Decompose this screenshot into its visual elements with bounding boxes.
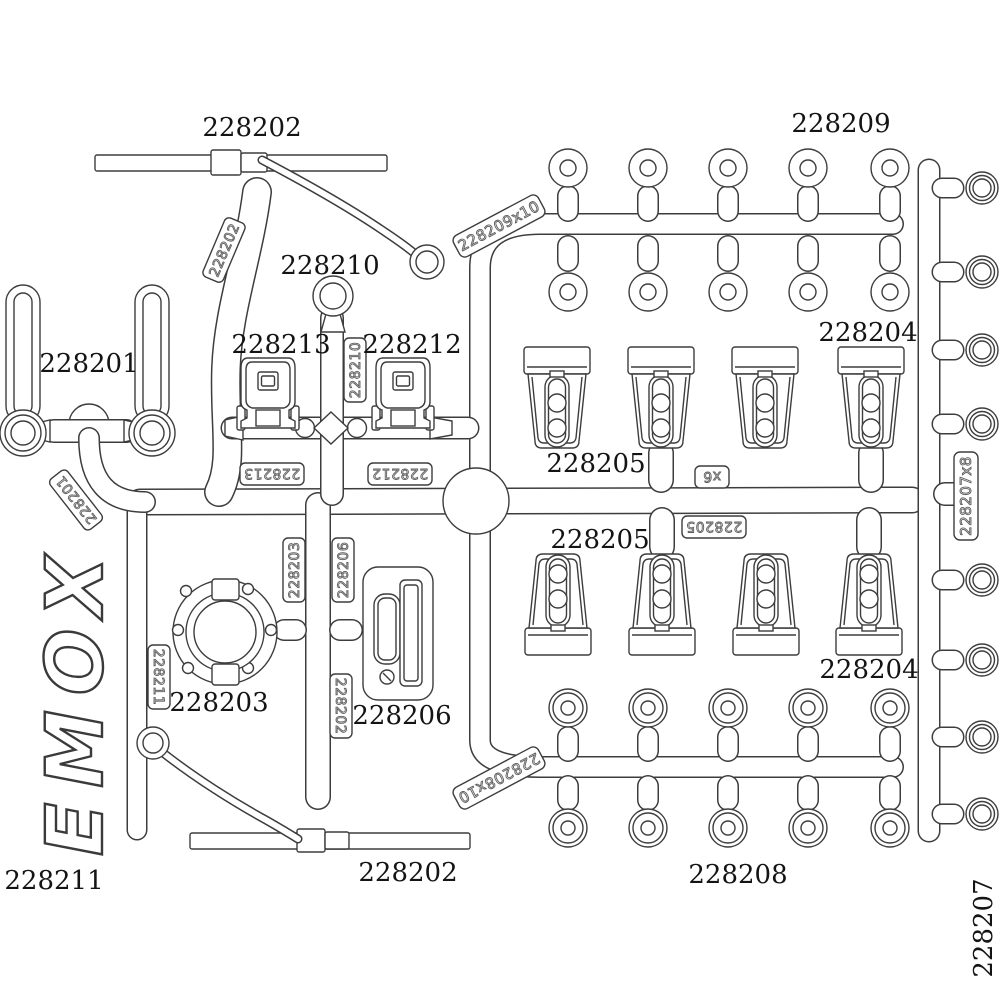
label-228204-top: 228204 [818,318,917,348]
label-228210: 228210 [280,251,379,281]
label-228206: 228206 [352,701,451,731]
sprue-tag-228207x8: 228207x8 [954,452,978,540]
sprue-tag-228205: 228205 [682,516,746,538]
label-228207: 228207 [969,878,999,977]
label-228202-bottom: 228202 [358,858,457,888]
sprue-tag-228212-text: 228212 [372,465,428,481]
part-228213 [237,358,299,430]
parts-diagram-page: 228209x10 228207x8 x6 228205 228208x10 2… [0,0,1000,1000]
sprue-tag-228203: 228203 [283,538,305,602]
sprue-tag-228211: 228211 [148,645,170,709]
part-228212 [372,358,434,430]
sprue-tag-x6: x6 [695,466,729,488]
sprue-tag-228202-mid-text: 228202 [332,678,348,734]
sprue-tag-228211-text: 228211 [150,649,166,705]
label-228202-top: 228202 [202,113,301,143]
sprue-tag-x6-text: x6 [703,468,721,484]
part-228206 [363,567,433,700]
brand-logo: EMOX [31,541,121,856]
part-228205-row-bottom [525,554,902,655]
sprue-tag-228205-text: 228205 [686,518,742,534]
label-228201: 228201 [39,349,138,379]
label-228212: 228212 [362,330,461,360]
part-228205-row-top [524,347,904,448]
label-228205-top: 228205 [546,449,645,479]
sprue-frame [54,170,960,831]
sprue-tag-228213-text: 228213 [244,465,300,481]
part-228202-bottom [137,727,470,852]
sprue-tag-228203-text: 228203 [287,542,303,598]
part-228203 [173,579,278,685]
label-228205-bottom: 228205 [550,525,649,555]
label-228208: 228208 [688,860,787,890]
sprue-tag-228202-mid: 228202 [330,674,352,738]
part-228202-top [95,150,444,279]
label-228204-bottom: 228204 [819,655,918,685]
sprue-tag-228206: 228206 [332,538,354,602]
sprue-tag-228213: 228213 [240,463,304,485]
sprue-diagram-canvas: 228209x10 228207x8 x6 228205 228208x10 2… [0,0,1000,1000]
label-228211: 228211 [4,866,103,896]
sprue-tag-228212: 228212 [368,463,432,485]
part-228210 [313,276,353,332]
label-228209: 228209 [791,109,890,139]
sprue-tag-228206-text: 228206 [336,542,352,598]
sprue-tag-228207x8-text: 228207x8 [957,456,975,536]
sprue-junction-circle [443,468,509,534]
label-228213: 228213 [231,330,330,360]
label-228203: 228203 [169,688,268,718]
